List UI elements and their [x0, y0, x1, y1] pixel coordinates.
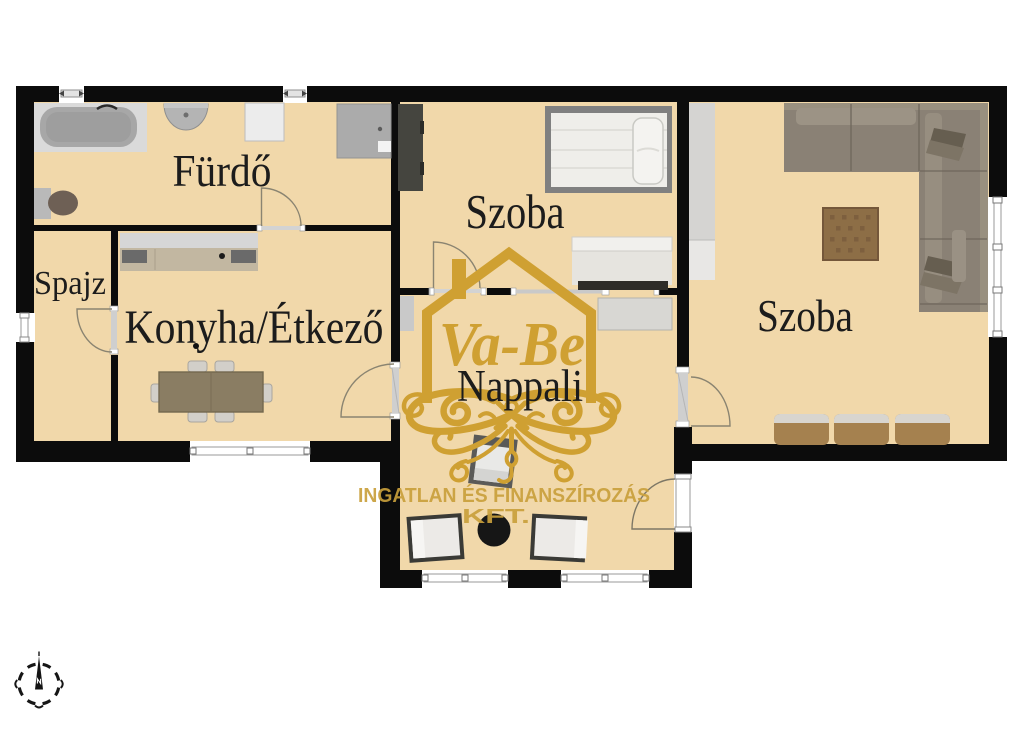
svg-text:Nappali: Nappali — [457, 361, 583, 411]
svg-text:INGATLAN ÉS FINANSZÍROZÁS: INGATLAN ÉS FINANSZÍROZÁS — [358, 484, 650, 507]
svg-text:KFT.: KFT. — [462, 505, 530, 528]
svg-text:Szoba: Szoba — [757, 290, 853, 341]
svg-text:Spajz: Spajz — [34, 265, 106, 302]
svg-text:Fürdő: Fürdő — [173, 146, 272, 196]
svg-text:Konyha/Étkező: Konyha/Étkező — [125, 301, 384, 354]
svg-text:Szoba: Szoba — [466, 184, 565, 239]
